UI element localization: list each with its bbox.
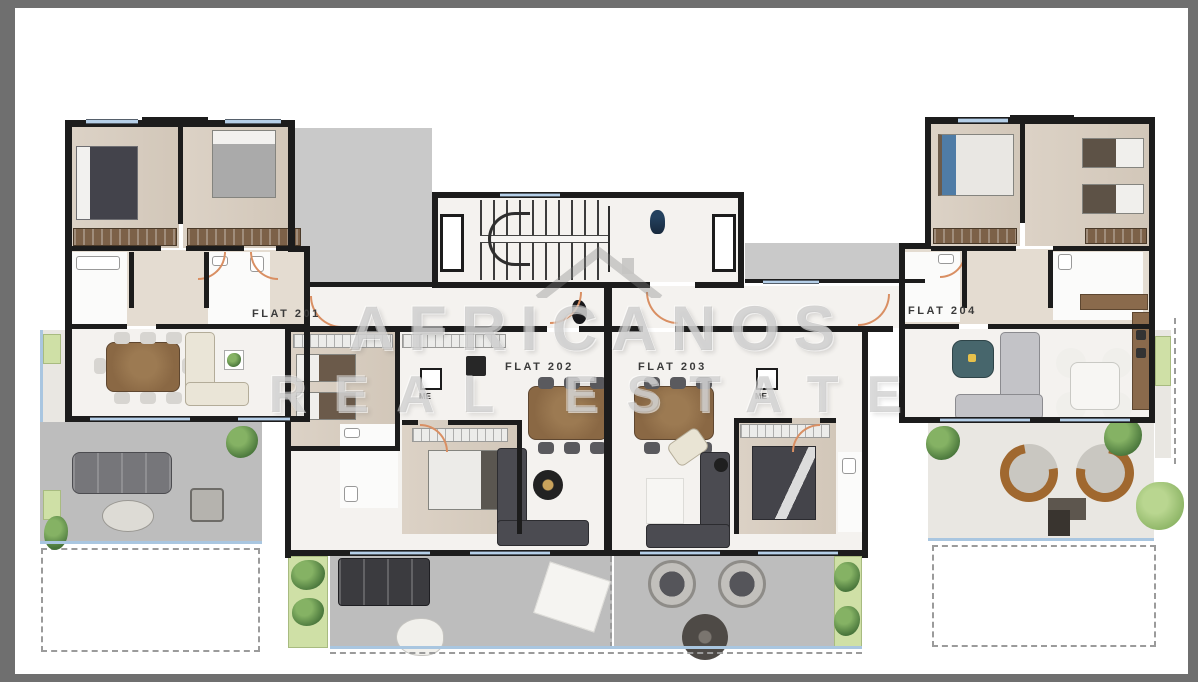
wall-segment: [695, 282, 744, 288]
wardrobe: [187, 228, 301, 246]
balcony-projection: [1174, 318, 1176, 464]
window: [958, 118, 1008, 123]
wall-segment: [276, 246, 288, 251]
wall-segment: [899, 324, 959, 329]
dining-chair: [114, 392, 130, 404]
utility-closet: [420, 368, 442, 390]
kitchen-counter: [1080, 294, 1148, 310]
window: [225, 119, 281, 124]
coffee-table: [533, 470, 563, 500]
bathtub: [76, 256, 120, 270]
flat-203-label: FLAT 203: [638, 362, 707, 373]
wall-segment: [304, 246, 310, 422]
duct-shaft: [440, 214, 464, 272]
terrace-projection: [932, 545, 1156, 647]
flat-204-label: FLAT 204: [908, 306, 977, 317]
wall-segment: [1048, 250, 1053, 308]
coffee-table: [396, 618, 444, 656]
outdoor-chair: [190, 488, 224, 522]
wall-segment: [675, 326, 893, 332]
sliding-door-glass: [640, 551, 720, 555]
sliding-door-glass: [1060, 418, 1130, 422]
duct-shaft: [712, 214, 736, 272]
wall-segment: [186, 246, 244, 251]
dining-table: [634, 386, 714, 440]
sliding-door-glass: [940, 418, 1030, 422]
wall-segment: [178, 126, 183, 224]
outdoor-sofa: [338, 558, 430, 606]
terrace-projection: [330, 652, 862, 654]
wall-segment: [1053, 246, 1149, 251]
double-bed: [212, 130, 276, 198]
cooktop: [1136, 330, 1146, 340]
double-bed: [752, 446, 816, 520]
plant-icon: [1136, 482, 1184, 530]
wall-segment: [734, 418, 792, 423]
wall-segment: [204, 252, 209, 308]
wall-segment: [988, 324, 1149, 329]
dining-chair: [94, 358, 106, 374]
dining-chair: [538, 442, 554, 454]
terrace-divider: [610, 556, 612, 648]
sliding-door-glass: [758, 551, 838, 555]
dining-table: [1070, 362, 1120, 410]
dining-chair: [538, 377, 554, 389]
sliding-door-glass: [350, 551, 430, 555]
double-bed: [938, 134, 1014, 196]
door-lintel: [142, 117, 208, 125]
glass-railing: [928, 538, 1154, 541]
kitchen-counter: [402, 334, 506, 348]
utility-closet: [756, 368, 778, 390]
wardrobe: [933, 228, 1017, 244]
wall-segment: [395, 332, 400, 450]
person-icon: [650, 210, 665, 234]
sink: [344, 428, 360, 438]
wall-segment: [71, 246, 161, 251]
wall-segment: [962, 250, 967, 308]
toilet: [842, 458, 856, 474]
toilet: [1058, 254, 1072, 270]
window: [500, 193, 560, 197]
wall-segment: [288, 120, 295, 252]
wall-segment: [285, 550, 612, 556]
wall-segment: [310, 282, 432, 287]
glass-railing: [330, 646, 862, 649]
wall-segment: [734, 418, 739, 534]
planter: [1155, 336, 1171, 386]
wall-segment: [129, 252, 134, 308]
double-bed: [76, 146, 138, 220]
dining-chair: [644, 442, 660, 454]
single-bed: [1082, 184, 1144, 214]
outdoor-chair: [718, 560, 766, 608]
wall-segment: [71, 324, 127, 329]
glass-railing: [40, 541, 262, 544]
party-wall: [604, 288, 612, 556]
wall-segment: [402, 420, 418, 425]
floor-lamp: [714, 458, 728, 472]
glass-railing: [40, 330, 43, 422]
wall-segment: [899, 243, 905, 423]
wall-segment: [931, 246, 1016, 251]
wall-segment: [65, 120, 72, 422]
single-bed: [1082, 138, 1144, 168]
flat-202-label: FLAT 202: [505, 362, 574, 373]
sliding-door-glass: [470, 551, 550, 555]
dining-table: [106, 342, 180, 392]
sliding-door-glass: [90, 417, 190, 421]
dining-table: [528, 386, 608, 440]
wall-segment: [1020, 123, 1025, 223]
dining-chair: [114, 332, 130, 344]
wall-segment: [1149, 117, 1155, 423]
wall-segment: [517, 420, 522, 534]
pillow: [968, 354, 976, 362]
stair-rail: [608, 206, 610, 272]
terrace-projection: [41, 548, 260, 652]
wardrobe: [1085, 228, 1147, 244]
floor-plan: ME ME FLAT 201 FLAT: [0, 0, 1198, 682]
fridge: [466, 356, 486, 376]
utility-label: ME: [755, 393, 767, 401]
plant-icon: [44, 516, 68, 550]
rug: [646, 478, 684, 524]
sliding-door-glass: [238, 417, 290, 421]
wall-segment: [862, 326, 868, 558]
window: [86, 119, 138, 124]
wall-segment: [738, 192, 744, 288]
coffee-table: [102, 500, 154, 532]
sofa: [185, 382, 249, 406]
outdoor-chair: [648, 560, 696, 608]
roof-slab-left: [295, 128, 432, 288]
wardrobe: [73, 228, 177, 246]
double-bed: [428, 450, 498, 510]
wall-segment: [432, 282, 650, 288]
wall-segment: [820, 418, 836, 423]
wall-segment: [925, 117, 931, 249]
wall-segment: [432, 192, 438, 288]
window: [763, 280, 819, 284]
wall-segment: [432, 192, 744, 198]
toilet: [344, 486, 358, 502]
utility-label: ME: [419, 393, 431, 401]
wall-segment: [448, 420, 522, 425]
sofa: [497, 520, 589, 546]
roof-slab-right: [745, 243, 925, 283]
flat-201-label: FLAT 201: [252, 309, 321, 320]
wall-segment: [285, 326, 547, 332]
wall-segment: [285, 326, 291, 558]
sofa: [646, 524, 730, 548]
planter: [43, 334, 61, 364]
wall-segment: [156, 324, 304, 329]
door-lintel: [1010, 115, 1074, 123]
outdoor-sofa: [72, 452, 172, 494]
side-table: [1048, 510, 1070, 536]
wall-segment: [291, 446, 400, 451]
dining-chair: [644, 377, 660, 389]
